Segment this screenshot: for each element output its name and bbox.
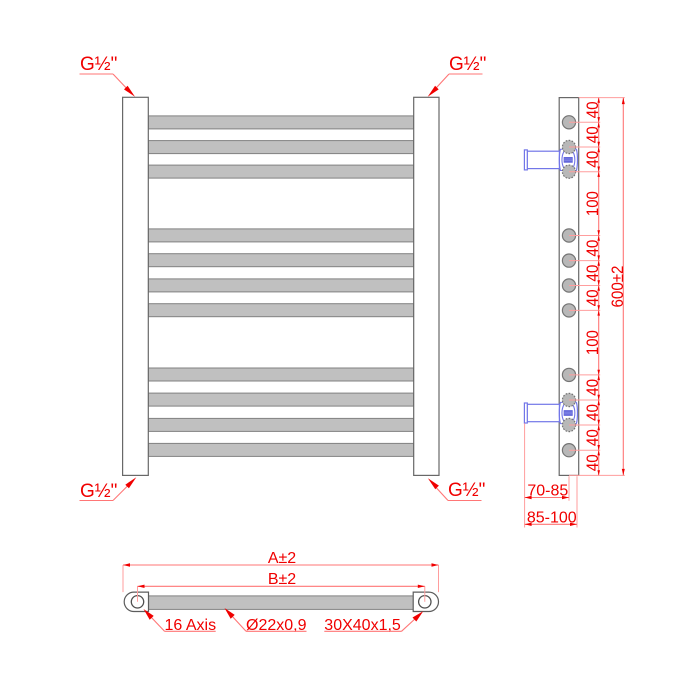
svg-text:40: 40 [583, 101, 602, 118]
svg-text:40: 40 [583, 151, 602, 168]
svg-text:40: 40 [583, 265, 602, 282]
svg-text:40: 40 [583, 240, 602, 257]
svg-text:B±2: B±2 [268, 571, 296, 588]
svg-text:G½": G½" [80, 481, 117, 502]
svg-text:40: 40 [583, 379, 602, 396]
svg-text:40: 40 [583, 454, 602, 471]
svg-text:600±2: 600±2 [608, 266, 627, 308]
svg-text:40: 40 [583, 429, 602, 446]
svg-text:G½": G½" [449, 54, 486, 75]
svg-text:40: 40 [583, 289, 602, 306]
svg-text:40: 40 [583, 126, 602, 143]
svg-text:100: 100 [583, 191, 602, 216]
svg-text:G½": G½" [448, 480, 485, 501]
svg-text:85-100: 85-100 [527, 509, 577, 526]
svg-text:G½": G½" [80, 54, 117, 75]
svg-text:70-85: 70-85 [527, 483, 568, 500]
svg-text:40: 40 [583, 404, 602, 421]
svg-text:A±2: A±2 [268, 550, 296, 567]
svg-text:100: 100 [583, 330, 602, 355]
